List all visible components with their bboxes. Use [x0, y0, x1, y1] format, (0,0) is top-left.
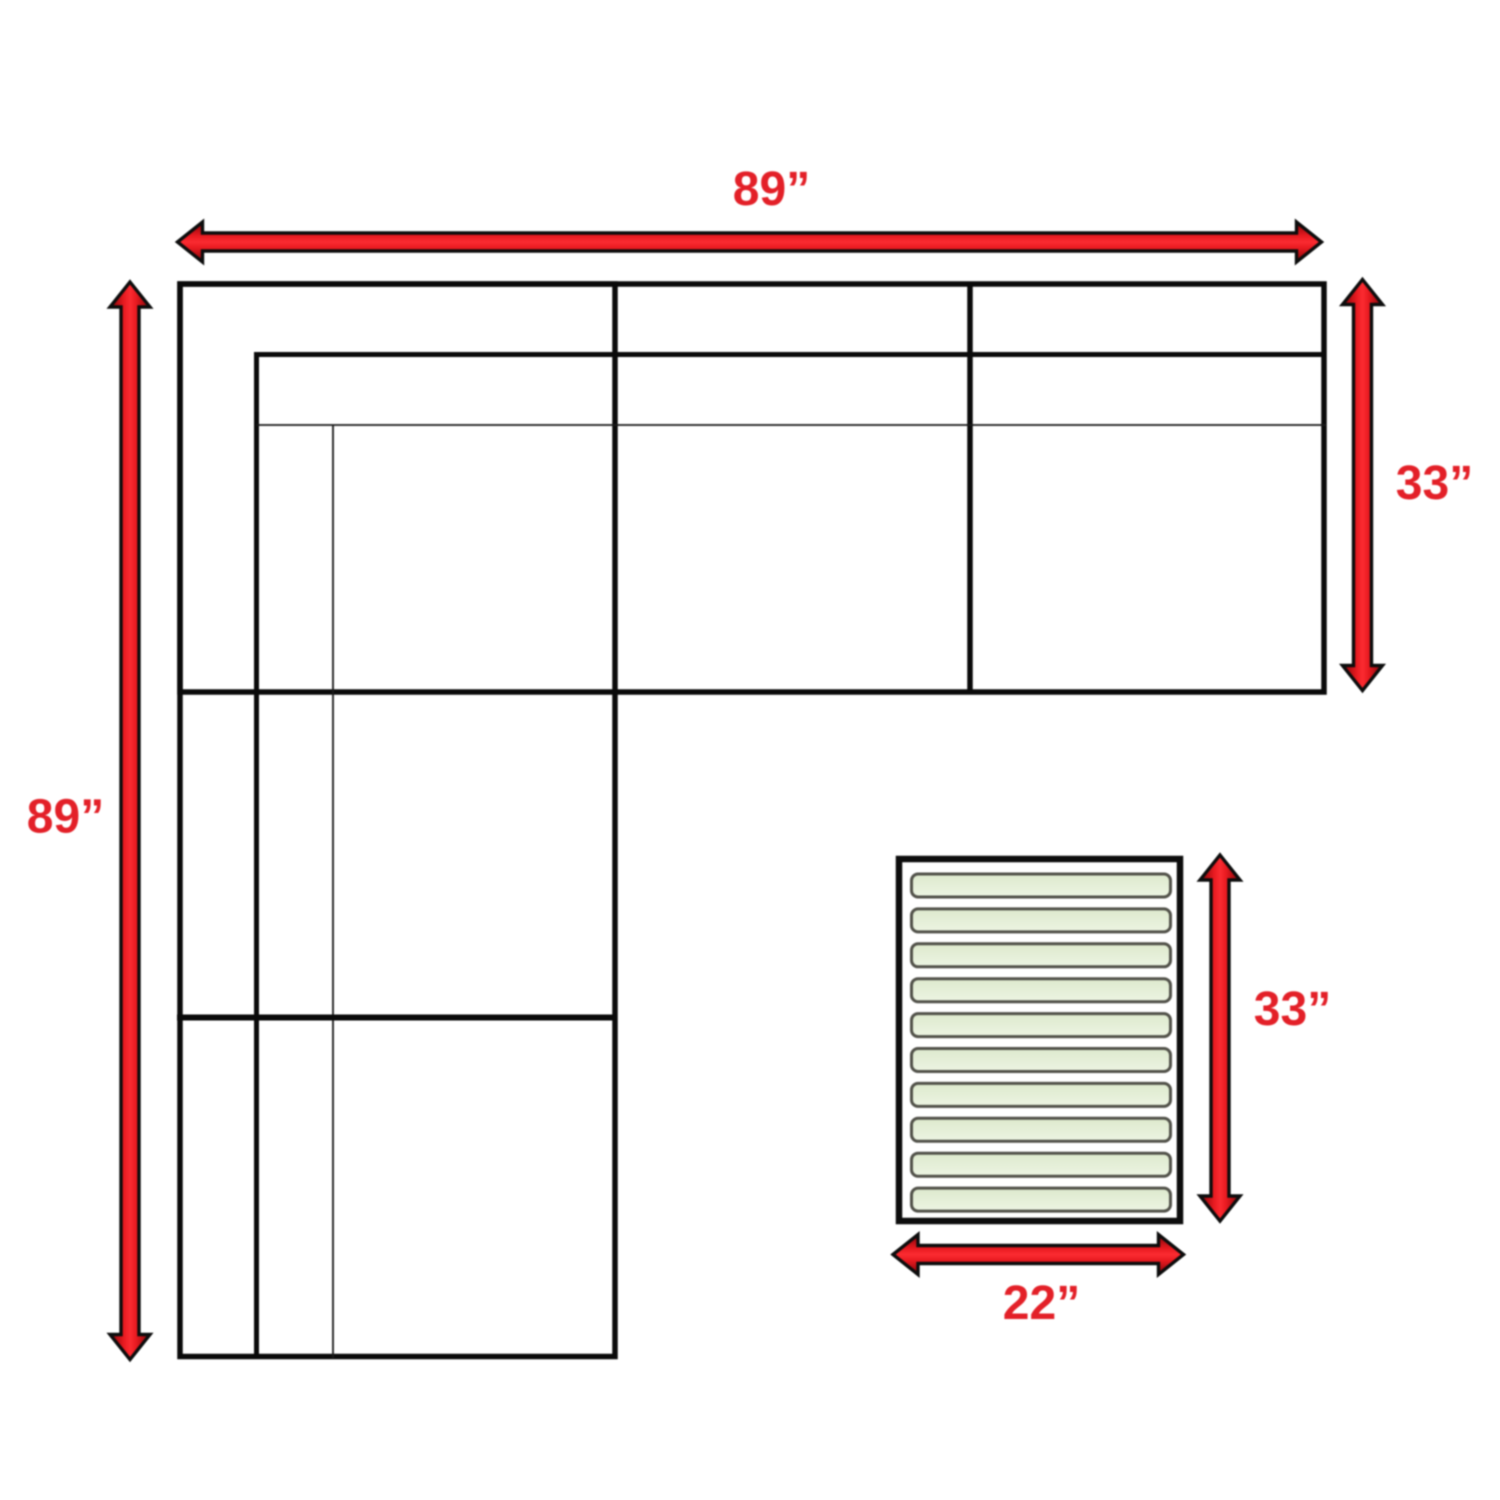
- svg-text:33”: 33”: [1254, 983, 1331, 1036]
- svg-text:89”: 89”: [27, 791, 104, 844]
- svg-text:89”: 89”: [733, 163, 810, 216]
- svg-text:33”: 33”: [1396, 457, 1473, 510]
- svg-text:22”: 22”: [1003, 1277, 1080, 1330]
